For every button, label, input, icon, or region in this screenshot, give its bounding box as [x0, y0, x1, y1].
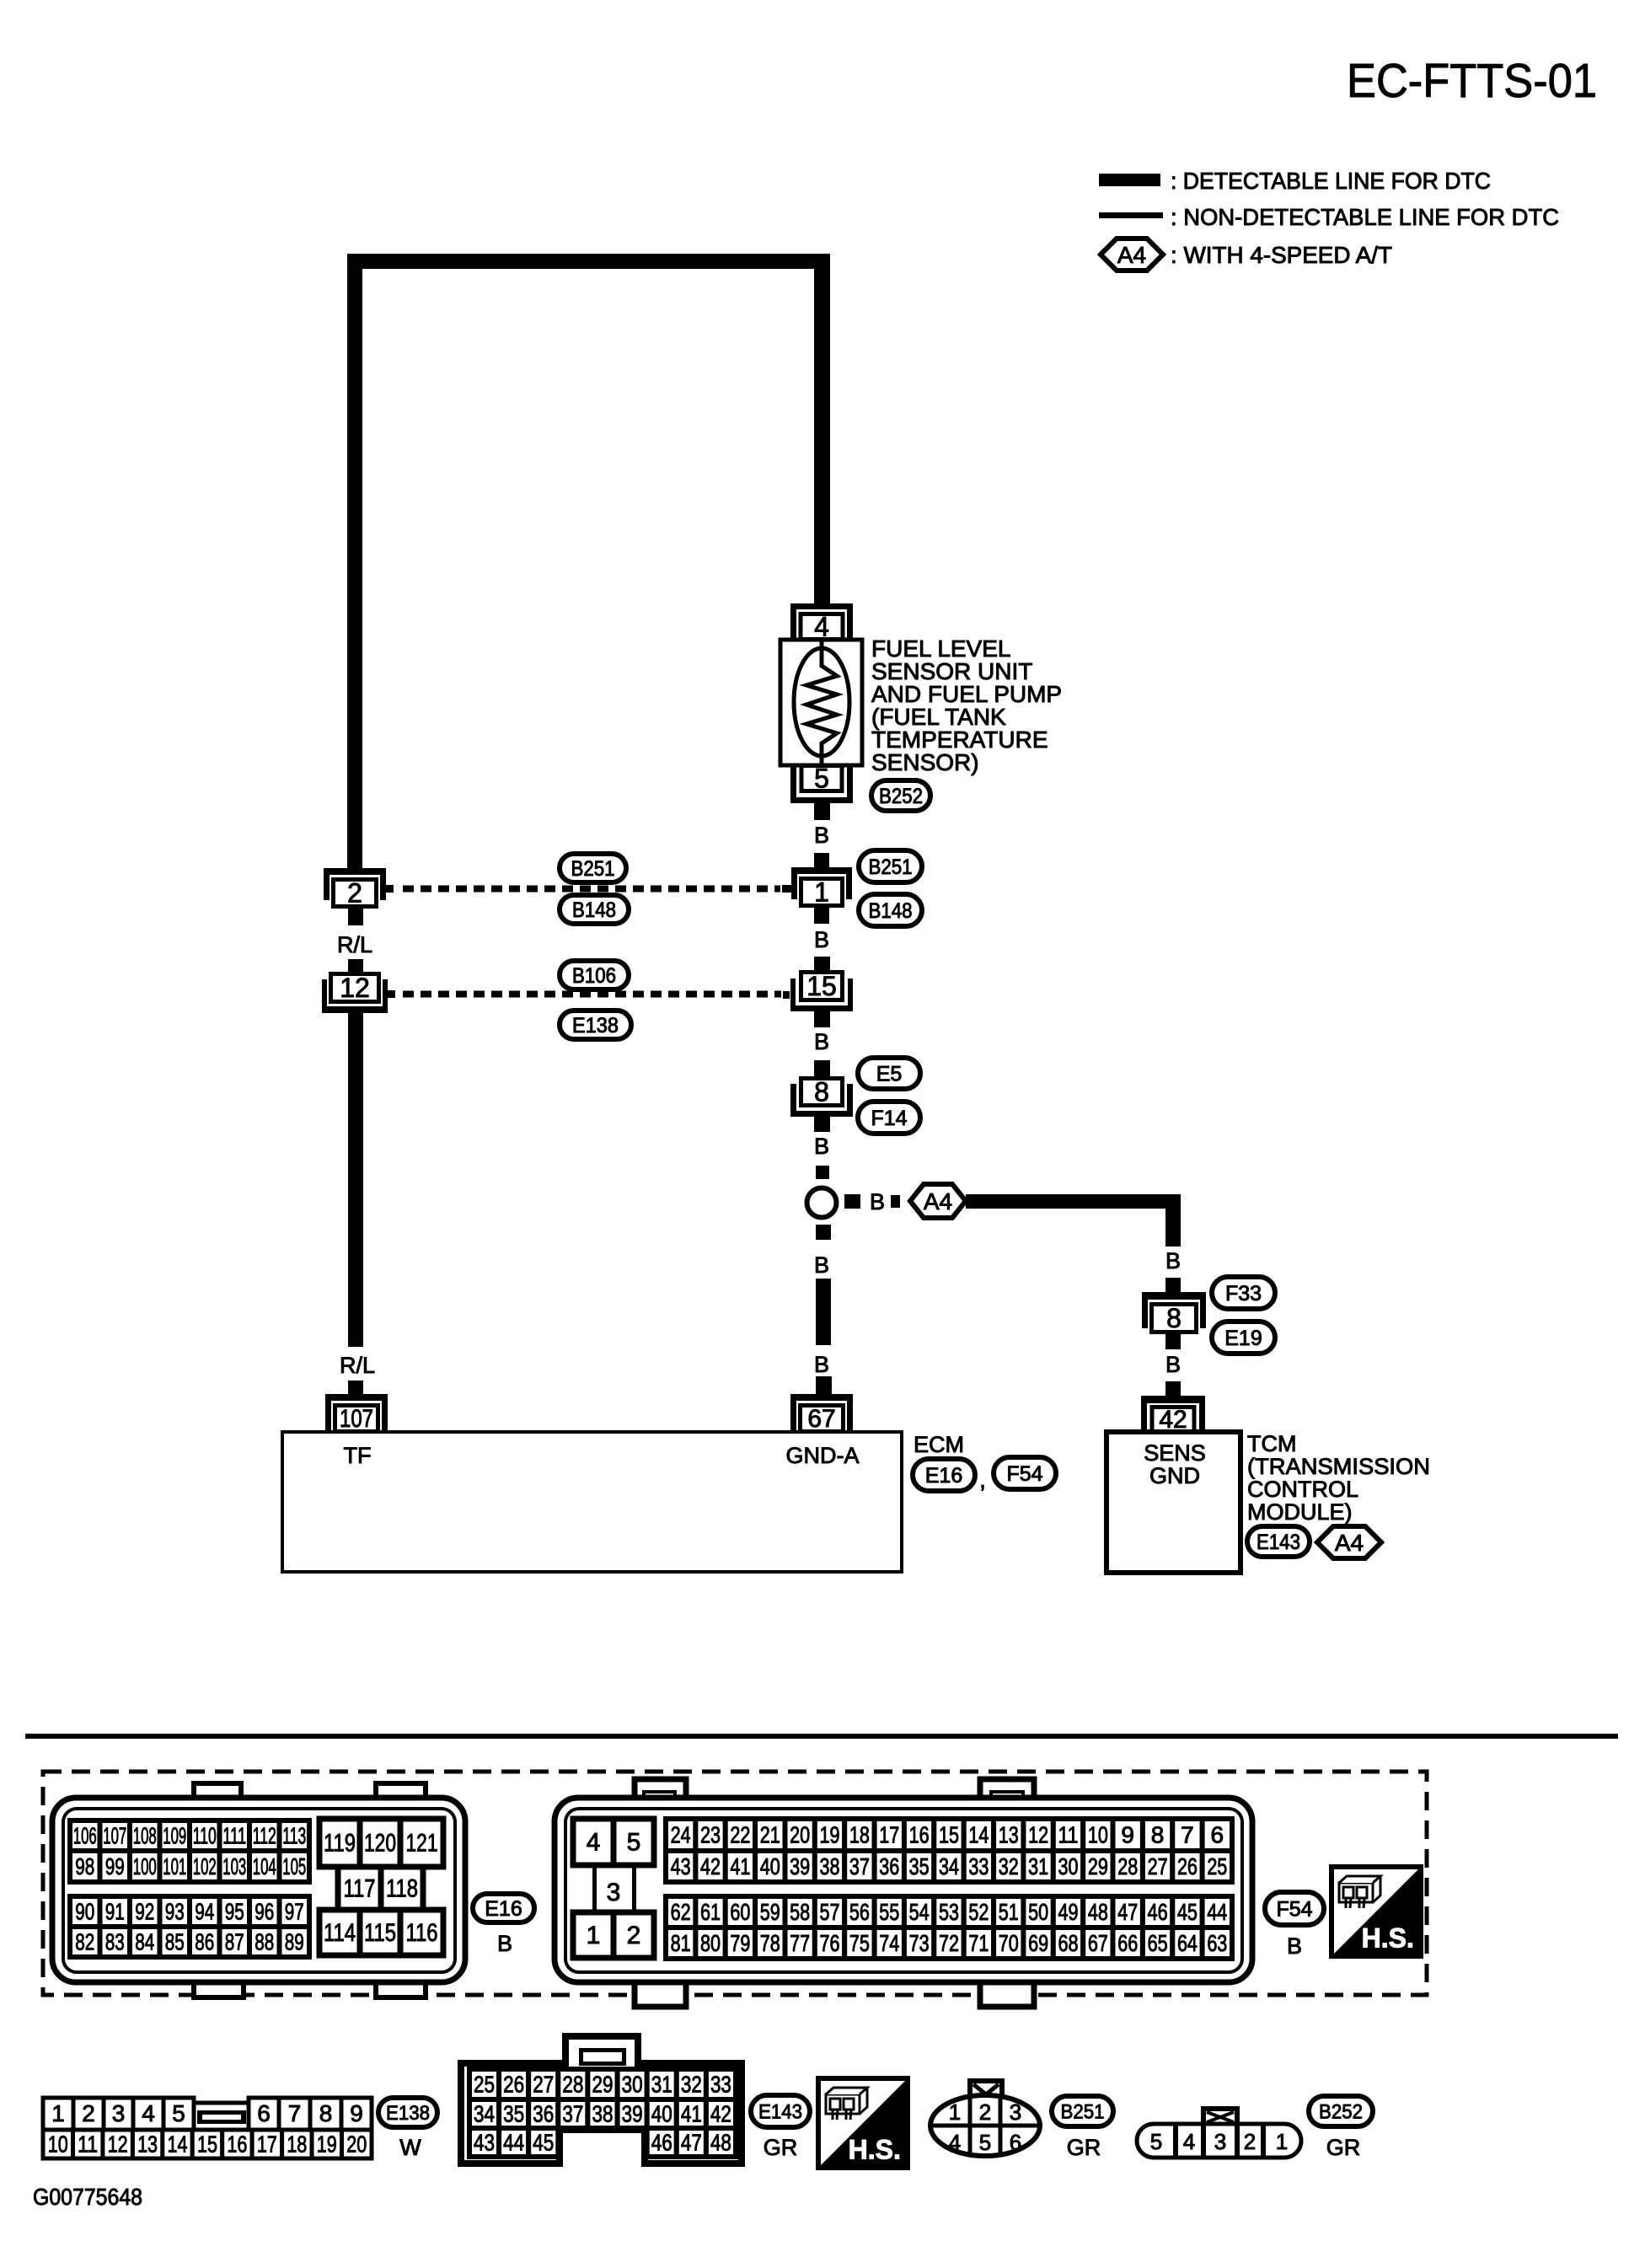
svg-text:83: 83: [105, 1929, 125, 1955]
svg-text:33: 33: [968, 1853, 989, 1879]
svg-text:4: 4: [1183, 2129, 1195, 2154]
svg-text:109: 109: [163, 1823, 186, 1849]
svg-text:67: 67: [1088, 1930, 1108, 1956]
svg-text:B251: B251: [1061, 2100, 1105, 2123]
svg-text:B: B: [1287, 1933, 1302, 1959]
svg-text:101: 101: [163, 1853, 186, 1879]
svg-text:9: 9: [1121, 1822, 1134, 1848]
svg-text:B: B: [814, 1252, 829, 1278]
svg-text:20: 20: [346, 2131, 367, 2158]
svg-text:B: B: [1165, 1248, 1181, 1273]
svg-text:46: 46: [651, 2130, 672, 2156]
svg-text:2: 2: [979, 2099, 991, 2125]
svg-text:16: 16: [909, 1822, 930, 1848]
svg-text:69: 69: [1028, 1930, 1048, 1956]
svg-text:11: 11: [78, 2131, 98, 2158]
svg-text:84: 84: [135, 1929, 154, 1955]
svg-text:43: 43: [474, 2130, 495, 2156]
svg-text:28: 28: [1117, 1853, 1138, 1879]
svg-text:30: 30: [1058, 1853, 1078, 1879]
svg-text:F14: F14: [871, 1107, 907, 1130]
svg-text:75: 75: [849, 1930, 870, 1956]
svg-text:26: 26: [503, 2072, 524, 2098]
svg-text:18: 18: [287, 2131, 307, 2158]
svg-text:42: 42: [710, 2101, 731, 2127]
svg-text:8: 8: [814, 1076, 829, 1107]
svg-text:W: W: [399, 2135, 421, 2160]
svg-text:95: 95: [225, 1899, 244, 1925]
svg-text:88: 88: [255, 1929, 274, 1955]
svg-text:24: 24: [671, 1822, 691, 1848]
svg-text:55: 55: [879, 1899, 899, 1925]
svg-text:39: 39: [790, 1853, 810, 1879]
svg-text:90: 90: [75, 1899, 94, 1925]
svg-text:117: 117: [344, 1875, 376, 1903]
svg-text:12: 12: [108, 2131, 128, 2158]
svg-text:110: 110: [193, 1823, 217, 1849]
svg-text:59: 59: [760, 1899, 780, 1925]
svg-text:114: 114: [324, 1919, 356, 1947]
svg-text:4: 4: [949, 2130, 961, 2155]
svg-text:29: 29: [1088, 1853, 1108, 1879]
svg-text:112: 112: [253, 1823, 276, 1849]
svg-text:107: 107: [103, 1823, 126, 1849]
svg-text:31: 31: [651, 2072, 672, 2098]
svg-text:18: 18: [849, 1822, 870, 1848]
svg-text:42: 42: [700, 1853, 721, 1879]
svg-text:77: 77: [790, 1930, 810, 1956]
svg-text:16: 16: [227, 2131, 247, 2158]
svg-text:12: 12: [340, 973, 370, 1003]
svg-text:5: 5: [979, 2130, 991, 2155]
svg-text:MODULE): MODULE): [1247, 1499, 1353, 1525]
svg-text:GR: GR: [1067, 2135, 1101, 2160]
svg-text:44: 44: [503, 2130, 524, 2156]
svg-text:SENS: SENS: [1144, 1440, 1206, 1466]
svg-text:36: 36: [533, 2101, 554, 2127]
svg-text:34: 34: [474, 2101, 495, 2127]
svg-text:8: 8: [319, 2100, 333, 2126]
svg-text:TCM: TCM: [1247, 1431, 1296, 1456]
svg-text:5: 5: [627, 1829, 641, 1857]
svg-text:73: 73: [909, 1930, 930, 1956]
svg-text:100: 100: [133, 1853, 157, 1879]
svg-text:78: 78: [760, 1930, 780, 1956]
svg-text:53: 53: [939, 1899, 959, 1925]
svg-text:94: 94: [195, 1899, 214, 1925]
svg-text:G00775648: G00775648: [33, 2184, 142, 2210]
svg-text:EC-FTTS-01: EC-FTTS-01: [1347, 54, 1597, 108]
svg-text:E5: E5: [876, 1062, 903, 1086]
svg-text:118: 118: [386, 1875, 418, 1903]
svg-text:91: 91: [105, 1899, 125, 1925]
svg-text:27: 27: [1148, 1853, 1168, 1879]
svg-text:93: 93: [165, 1899, 185, 1925]
svg-text:5: 5: [172, 2100, 185, 2126]
svg-text:46: 46: [1148, 1899, 1168, 1925]
svg-text:B: B: [1165, 1352, 1181, 1377]
svg-text:23: 23: [700, 1822, 721, 1848]
svg-text:B: B: [814, 1029, 829, 1054]
svg-text:E19: E19: [1224, 1327, 1262, 1350]
svg-text:10: 10: [1088, 1822, 1108, 1848]
svg-text:,: ,: [979, 1467, 986, 1493]
svg-text:39: 39: [622, 2101, 643, 2127]
svg-text:35: 35: [503, 2101, 524, 2127]
svg-text:E138: E138: [572, 1014, 619, 1037]
svg-text:A4: A4: [924, 1188, 952, 1214]
svg-text:6: 6: [1010, 2130, 1021, 2155]
svg-text:: WITH 4-SPEED A/T: : WITH 4-SPEED A/T: [1171, 242, 1392, 268]
svg-text:40: 40: [760, 1853, 780, 1879]
svg-text:6: 6: [257, 2100, 271, 2126]
svg-text:31: 31: [1028, 1853, 1048, 1879]
svg-text:65: 65: [1148, 1930, 1168, 1956]
svg-text:48: 48: [710, 2130, 731, 2156]
svg-text:41: 41: [681, 2101, 702, 2127]
svg-text:61: 61: [700, 1899, 721, 1925]
svg-text:2: 2: [627, 1922, 641, 1949]
svg-text:3: 3: [1214, 2129, 1226, 2154]
svg-text:14: 14: [968, 1822, 989, 1848]
svg-text:1: 1: [51, 2100, 65, 2126]
svg-text:30: 30: [622, 2072, 643, 2098]
svg-text:36: 36: [879, 1853, 899, 1879]
svg-text:37: 37: [562, 2101, 583, 2127]
svg-text:76: 76: [820, 1930, 840, 1956]
svg-text:44: 44: [1207, 1899, 1227, 1925]
svg-text:8: 8: [1151, 1822, 1165, 1848]
svg-text:33: 33: [710, 2072, 731, 2098]
svg-text:103: 103: [222, 1853, 246, 1879]
svg-text:6: 6: [1211, 1822, 1224, 1848]
svg-text:26: 26: [1177, 1853, 1198, 1879]
svg-text:102: 102: [193, 1853, 217, 1879]
svg-text:F54: F54: [1276, 1897, 1312, 1921]
svg-text:52: 52: [968, 1899, 989, 1925]
svg-text:13: 13: [999, 1822, 1019, 1848]
svg-text:104: 104: [253, 1853, 276, 1879]
svg-text:10: 10: [48, 2131, 68, 2158]
svg-text:B252: B252: [879, 785, 923, 808]
svg-text:TF: TF: [344, 1443, 372, 1468]
svg-text:38: 38: [592, 2101, 614, 2127]
svg-text:5: 5: [1150, 2129, 1162, 2154]
svg-text:68: 68: [1058, 1930, 1078, 1956]
svg-text:27: 27: [533, 2072, 554, 2098]
svg-text:15: 15: [806, 971, 837, 1001]
svg-text:50: 50: [1028, 1899, 1048, 1925]
svg-text:4: 4: [587, 1829, 601, 1857]
svg-text:56: 56: [849, 1899, 870, 1925]
svg-text:37: 37: [849, 1853, 870, 1879]
svg-text:B: B: [870, 1189, 885, 1214]
svg-text:GND: GND: [1149, 1463, 1200, 1488]
svg-text:19: 19: [820, 1822, 840, 1848]
svg-text:15: 15: [939, 1822, 959, 1848]
svg-text:15: 15: [197, 2131, 217, 2158]
svg-text:B: B: [814, 823, 829, 848]
svg-text:22: 22: [730, 1822, 750, 1848]
svg-text:34: 34: [939, 1853, 959, 1879]
svg-text:F54: F54: [1006, 1462, 1042, 1486]
svg-text:2: 2: [1244, 2129, 1256, 2154]
svg-text:B106: B106: [572, 964, 616, 988]
svg-text:3: 3: [112, 2100, 126, 2126]
svg-text:B: B: [814, 927, 829, 952]
svg-text:67: 67: [807, 1405, 835, 1433]
svg-text:17: 17: [257, 2131, 277, 2158]
svg-text:87: 87: [225, 1929, 244, 1955]
svg-text:79: 79: [730, 1930, 750, 1956]
svg-text:B: B: [814, 1134, 829, 1159]
svg-text:7: 7: [288, 2100, 302, 2126]
svg-text:19: 19: [317, 2131, 337, 2158]
svg-text:1: 1: [587, 1922, 601, 1949]
svg-text:GR: GR: [1326, 2135, 1361, 2160]
svg-text:115: 115: [364, 1919, 396, 1947]
svg-text:49: 49: [1058, 1899, 1078, 1925]
svg-text:B148: B148: [572, 898, 616, 922]
svg-text:R/L: R/L: [340, 1353, 375, 1378]
svg-text:GR: GR: [764, 2135, 798, 2160]
svg-text:108: 108: [133, 1823, 157, 1849]
svg-text:E143: E143: [1257, 1531, 1300, 1554]
svg-text:ECM: ECM: [914, 1432, 964, 1457]
svg-text:63: 63: [1207, 1930, 1227, 1956]
svg-text:H.S.: H.S.: [849, 2134, 901, 2164]
svg-text:80: 80: [700, 1930, 721, 1956]
svg-text:81: 81: [671, 1930, 691, 1956]
svg-text:25: 25: [474, 2072, 495, 2098]
svg-text:32: 32: [681, 2072, 702, 2098]
svg-text:2: 2: [347, 877, 362, 908]
svg-text:4: 4: [814, 611, 829, 641]
svg-text:51: 51: [999, 1899, 1019, 1925]
svg-text:64: 64: [1177, 1930, 1198, 1956]
svg-text:: NON-DETECTABLE LINE FOR DTC: : NON-DETECTABLE LINE FOR DTC: [1171, 204, 1559, 230]
svg-text:89: 89: [285, 1929, 304, 1955]
svg-text:54: 54: [909, 1899, 930, 1925]
svg-text:105: 105: [282, 1853, 306, 1879]
svg-text:74: 74: [879, 1930, 899, 1956]
svg-text:28: 28: [562, 2072, 583, 2098]
svg-text:13: 13: [137, 2131, 158, 2158]
svg-text:GND-A: GND-A: [786, 1443, 860, 1468]
svg-text:86: 86: [195, 1929, 214, 1955]
svg-text:3: 3: [607, 1879, 621, 1906]
svg-text:B251: B251: [571, 857, 615, 881]
svg-text:66: 66: [1117, 1930, 1138, 1956]
svg-text:E138: E138: [386, 2102, 430, 2125]
svg-text:70: 70: [999, 1930, 1019, 1956]
svg-text:3: 3: [1010, 2099, 1021, 2125]
svg-text:: DETECTABLE LINE FOR DTC: : DETECTABLE LINE FOR DTC: [1171, 168, 1491, 194]
svg-text:5: 5: [814, 763, 829, 793]
svg-text:CONTROL: CONTROL: [1247, 1477, 1358, 1502]
svg-text:35: 35: [909, 1853, 930, 1879]
svg-text:121: 121: [406, 1830, 438, 1858]
svg-text:71: 71: [968, 1930, 989, 1956]
svg-text:R/L: R/L: [337, 932, 372, 957]
svg-text:8: 8: [1166, 1303, 1182, 1333]
svg-text:29: 29: [592, 2072, 614, 2098]
svg-text:60: 60: [730, 1899, 750, 1925]
svg-text:21: 21: [760, 1822, 780, 1848]
svg-text:47: 47: [1117, 1899, 1138, 1925]
svg-text:SENSOR): SENSOR): [871, 749, 979, 775]
svg-text:82: 82: [75, 1929, 94, 1955]
svg-text:106: 106: [73, 1823, 97, 1849]
svg-text:25: 25: [1207, 1853, 1227, 1879]
svg-text:9: 9: [350, 2100, 363, 2126]
svg-text:99: 99: [105, 1853, 125, 1879]
svg-text:1: 1: [814, 877, 829, 907]
svg-text:E16: E16: [925, 1464, 962, 1488]
svg-text:H.S.: H.S.: [1362, 1922, 1414, 1953]
svg-text:11: 11: [1058, 1822, 1078, 1848]
svg-text:17: 17: [879, 1822, 899, 1848]
svg-text:45: 45: [533, 2130, 554, 2156]
svg-text:32: 32: [999, 1853, 1019, 1879]
svg-text:111: 111: [222, 1823, 246, 1849]
svg-text:58: 58: [790, 1899, 810, 1925]
svg-text:72: 72: [939, 1930, 959, 1956]
svg-text:B251: B251: [869, 855, 913, 879]
svg-text:14: 14: [168, 2131, 188, 2158]
svg-text:107: 107: [340, 1405, 373, 1433]
svg-text:1: 1: [1276, 2129, 1288, 2154]
svg-text:119: 119: [324, 1830, 356, 1858]
svg-text:120: 120: [364, 1830, 396, 1858]
svg-text:92: 92: [135, 1899, 154, 1925]
svg-text:B148: B148: [869, 899, 913, 923]
svg-text:A4: A4: [1335, 1530, 1364, 1556]
svg-text:B: B: [497, 1931, 512, 1956]
svg-text:97: 97: [285, 1899, 304, 1925]
svg-text:4: 4: [142, 2100, 155, 2126]
svg-text:85: 85: [165, 1929, 185, 1955]
svg-text:7: 7: [1181, 1822, 1194, 1848]
svg-text:57: 57: [820, 1899, 840, 1925]
svg-text:1: 1: [949, 2099, 961, 2125]
svg-text:98: 98: [75, 1853, 94, 1879]
svg-text:116: 116: [406, 1919, 438, 1947]
svg-text:38: 38: [820, 1853, 840, 1879]
svg-text:41: 41: [730, 1853, 750, 1879]
svg-text:12: 12: [1028, 1822, 1048, 1848]
svg-text:(TRANSMISSION: (TRANSMISSION: [1247, 1454, 1430, 1479]
svg-text:20: 20: [790, 1822, 810, 1848]
svg-text:47: 47: [681, 2130, 702, 2156]
svg-text:E16: E16: [485, 1897, 522, 1921]
svg-text:B: B: [814, 1352, 829, 1377]
svg-text:48: 48: [1088, 1899, 1108, 1925]
svg-text:E143: E143: [758, 2100, 802, 2123]
svg-text:43: 43: [671, 1853, 691, 1879]
svg-text:F33: F33: [1225, 1282, 1262, 1306]
svg-text:45: 45: [1177, 1899, 1198, 1925]
svg-text:40: 40: [651, 2101, 672, 2127]
svg-text:96: 96: [255, 1899, 274, 1925]
svg-text:2: 2: [82, 2100, 95, 2126]
svg-text:A4: A4: [1117, 242, 1146, 268]
svg-text:B252: B252: [1319, 2100, 1363, 2123]
svg-text:62: 62: [671, 1899, 691, 1925]
svg-text:113: 113: [282, 1823, 306, 1849]
